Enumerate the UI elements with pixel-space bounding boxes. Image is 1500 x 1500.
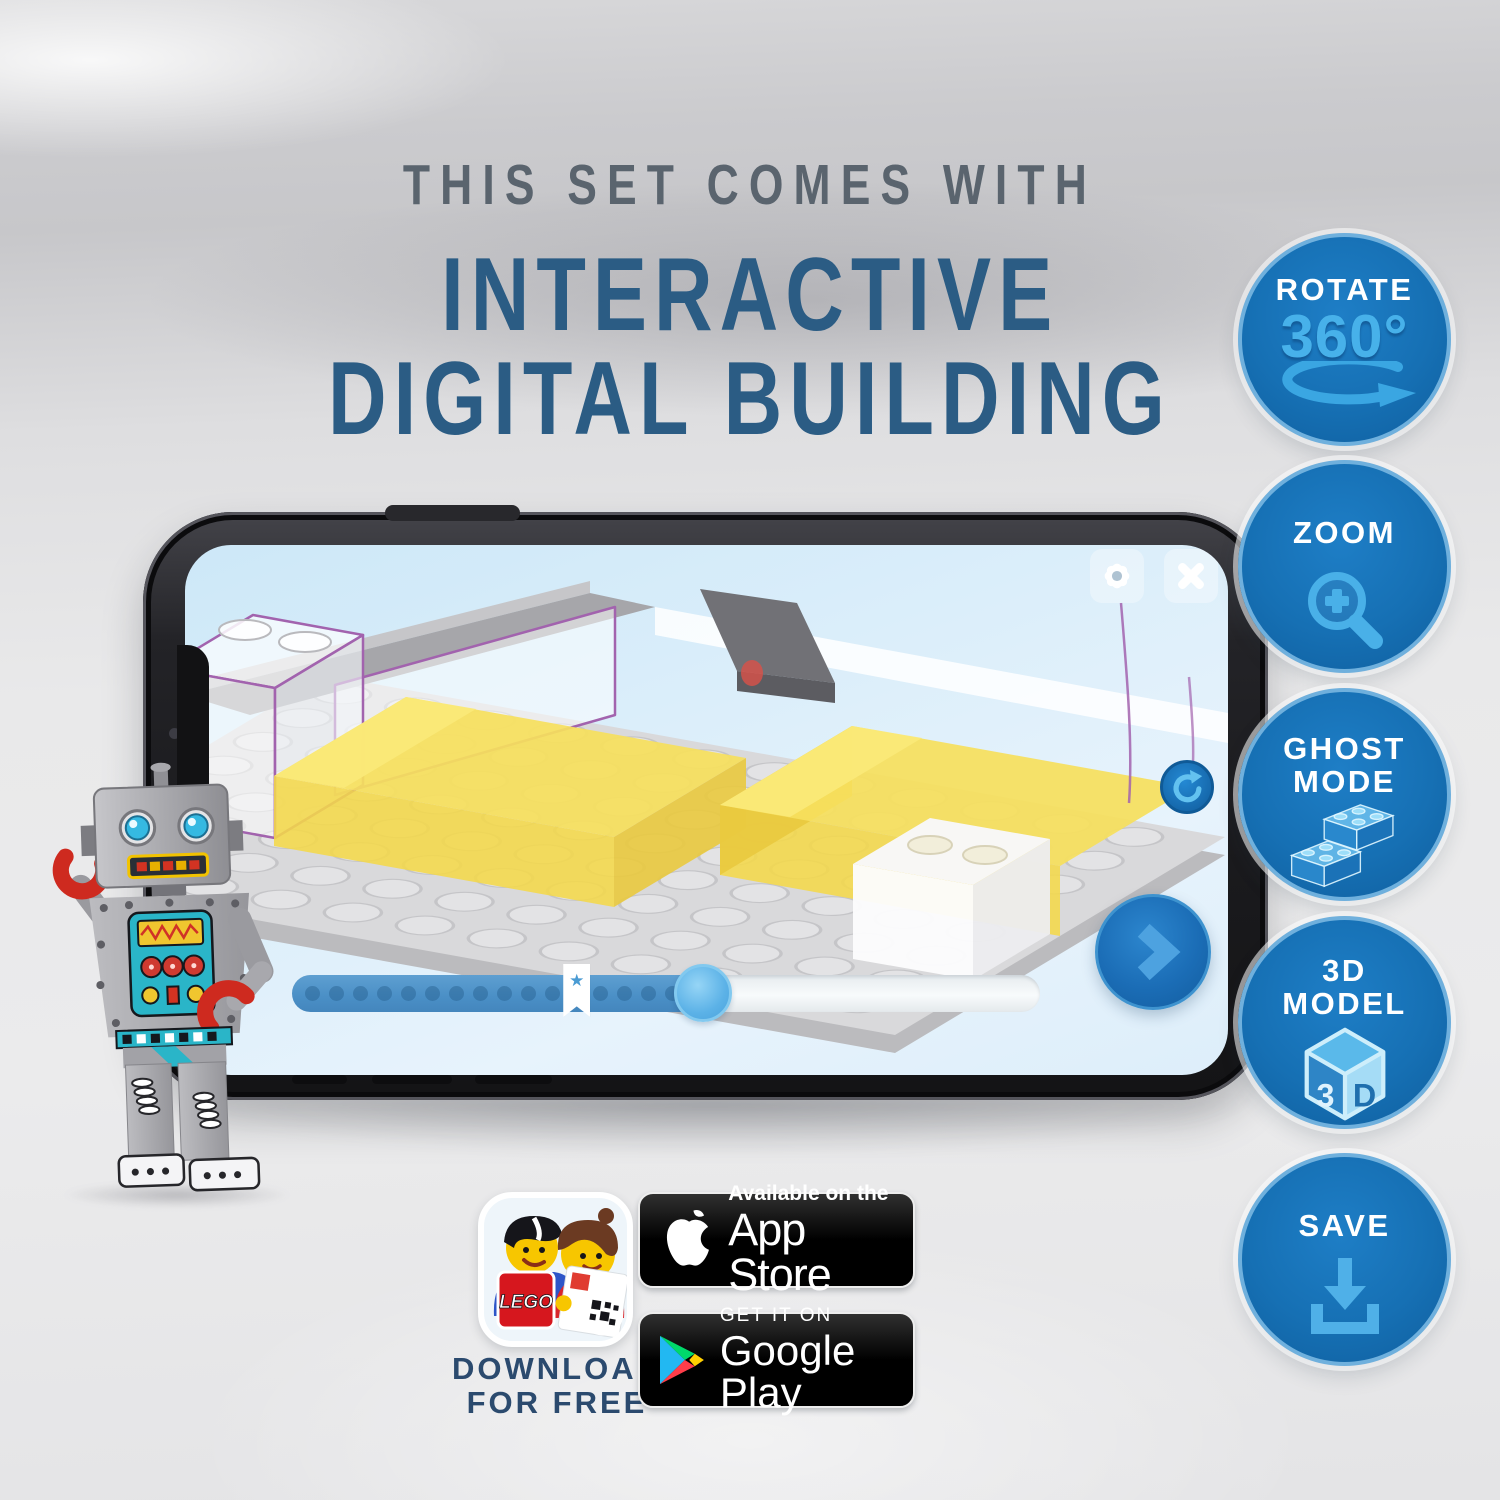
save-download-icon	[1297, 1254, 1393, 1346]
refresh-icon	[1168, 768, 1206, 806]
google-play-text: GET IT ON Google Play	[720, 1306, 913, 1414]
feature-badge-save: SAVE	[1238, 1153, 1451, 1366]
slider-dot	[305, 986, 320, 1001]
phone-speaker-slot	[475, 1075, 552, 1084]
headline-line1-text: INTERACTIVE	[441, 236, 1059, 355]
zoom-magnifier-icon	[1297, 563, 1393, 659]
close-button[interactable]	[1164, 549, 1218, 603]
slider-dot	[377, 986, 392, 1001]
slider-dot	[401, 986, 416, 1001]
close-icon	[1170, 555, 1212, 597]
feature-badge-3d-model: 3D MODEL 3 D	[1238, 916, 1451, 1129]
slider-dot	[521, 986, 536, 1001]
lego-app-icon[interactable]: LEGO	[478, 1192, 633, 1347]
app-store-tagline: Available on the	[728, 1183, 913, 1204]
feature-label: SAVE	[1298, 1209, 1390, 1242]
lego-logo: LEGO	[498, 1272, 554, 1328]
app-store-name: App Store	[728, 1207, 913, 1297]
slider-dot	[593, 986, 608, 1001]
cube-letter-d: D	[1352, 1077, 1375, 1113]
feature-label: ROTATE	[1276, 273, 1414, 306]
headline-kicker: THIS SET COMES WITH	[0, 152, 1500, 218]
feature-label: GHOST MODE	[1283, 732, 1406, 799]
feature-badge-ghost-mode: GHOST MODE	[1238, 688, 1451, 901]
app-store-badge[interactable]: Available on the App Store	[638, 1192, 915, 1288]
robot-neck	[152, 885, 187, 896]
feature-label: ZOOM	[1293, 516, 1396, 549]
ghost-mode-brick-icon	[1282, 803, 1408, 897]
google-play-tagline: GET IT ON	[720, 1306, 913, 1325]
marketing-page: THIS SET COMES WITH INTERACTIVE DIGITAL …	[0, 0, 1500, 1500]
phone-speaker-slot	[372, 1075, 452, 1084]
minifig-head-dot	[741, 660, 763, 686]
slider-dot	[545, 986, 560, 1001]
refresh-button[interactable]	[1160, 760, 1214, 814]
slider-dot	[425, 986, 440, 1001]
feature-label-line2: MODEL	[1282, 987, 1406, 1020]
feature-label-line1: 3D	[1282, 954, 1406, 987]
feature-badge-zoom: ZOOM	[1238, 460, 1451, 673]
app-store-text: Available on the App Store	[728, 1183, 913, 1297]
slider-dot	[329, 986, 344, 1001]
phone-speaker-slot	[292, 1075, 347, 1084]
lego-app-icon-art: LEGO	[484, 1198, 627, 1341]
google-play-icon	[660, 1331, 704, 1389]
3d-model-cube-icon: 3 D	[1293, 1023, 1397, 1125]
robot-minifigure	[52, 760, 292, 1195]
lego-logo-text: LEGO	[499, 1292, 553, 1313]
google-play-name: Google Play	[720, 1330, 913, 1414]
slider-dot	[449, 986, 464, 1001]
headline-line2-text: DIGITAL BUILDING	[328, 340, 1172, 459]
kicker-text: THIS SET COMES WITH	[403, 152, 1097, 218]
settings-gear-icon	[1096, 555, 1138, 597]
phone-shadow	[170, 1098, 1250, 1156]
next-icon	[1122, 921, 1184, 983]
phone-mockup: ★	[143, 512, 1268, 1100]
rotate-arrow-icon	[1270, 361, 1420, 409]
google-play-badge[interactable]: GET IT ON Google Play	[638, 1312, 915, 1408]
slider-dot	[497, 986, 512, 1001]
app-screen: ★	[185, 545, 1228, 1075]
apple-icon	[660, 1208, 712, 1272]
slider-dot	[641, 986, 656, 1001]
cube-letter-3: 3	[1316, 1077, 1334, 1113]
phone-power-button	[385, 505, 520, 521]
slider-dot	[353, 986, 368, 1001]
feature-label-line2: MODE	[1283, 765, 1406, 798]
slider-dot	[473, 986, 488, 1001]
slider-dot	[617, 986, 632, 1001]
slider-handle[interactable]	[674, 964, 732, 1022]
feature-label: 3D MODEL	[1282, 954, 1406, 1021]
feature-label-line1: GHOST	[1283, 732, 1406, 765]
settings-button[interactable]	[1090, 549, 1144, 603]
next-step-button[interactable]	[1095, 894, 1211, 1010]
robot-mouth	[128, 854, 208, 878]
feature-badge-rotate: ROTATE 360°	[1238, 233, 1451, 446]
